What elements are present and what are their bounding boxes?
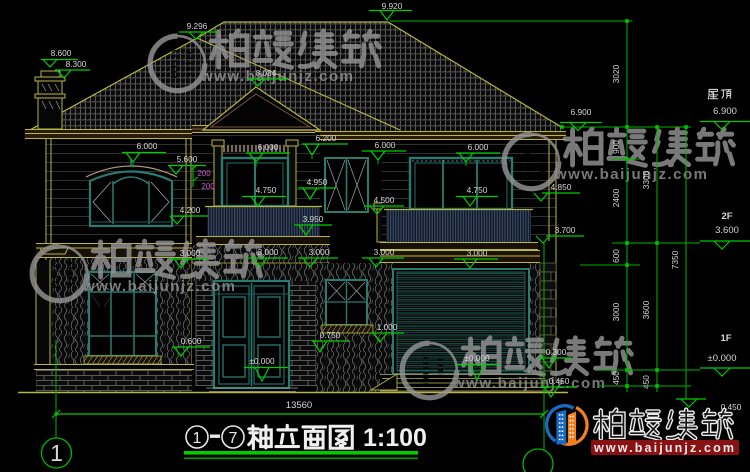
svg-text:3.950: 3.950: [303, 214, 324, 224]
svg-text:3.000: 3.000: [309, 247, 330, 257]
svg-text:2F: 2F: [721, 211, 732, 222]
svg-text:7350: 7350: [670, 250, 680, 269]
svg-text:900: 900: [611, 140, 621, 154]
svg-text:200: 200: [197, 169, 211, 178]
svg-text:450: 450: [611, 371, 621, 385]
svg-text:3.000: 3.000: [180, 248, 201, 258]
svg-text:1F: 1F: [720, 333, 731, 344]
svg-text:6.900: 6.900: [571, 107, 592, 117]
svg-text:4.750: 4.750: [256, 185, 277, 195]
svg-text:6.000: 6.000: [137, 141, 158, 151]
svg-text:4.200: 4.200: [180, 205, 201, 215]
svg-text:3.000: 3.000: [467, 248, 488, 258]
svg-text:4.500: 4.500: [374, 195, 395, 205]
svg-text:1.000: 1.000: [377, 322, 398, 332]
svg-text:0.600: 0.600: [181, 336, 202, 346]
svg-text:3.000: 3.000: [258, 247, 279, 257]
svg-text:4.950: 4.950: [307, 177, 328, 187]
svg-text:6.000: 6.000: [468, 142, 489, 152]
svg-text:0.750: 0.750: [320, 330, 341, 340]
svg-text:3600: 3600: [641, 300, 651, 319]
svg-text:3.000: 3.000: [374, 247, 395, 257]
svg-text:0.300: 0.300: [546, 347, 567, 357]
svg-text:6.900: 6.900: [713, 106, 737, 117]
svg-text:450: 450: [641, 375, 651, 389]
svg-text:1:100: 1:100: [363, 424, 427, 452]
svg-text:7: 7: [229, 430, 238, 447]
svg-text:3020: 3020: [611, 64, 621, 83]
svg-text:2400: 2400: [611, 188, 621, 207]
svg-text:3.600: 3.600: [715, 225, 739, 236]
svg-text:4.850: 4.850: [551, 182, 572, 192]
svg-text:9.920: 9.920: [382, 1, 403, 11]
svg-text:6.200: 6.200: [316, 133, 337, 143]
svg-text:8.300: 8.300: [66, 59, 87, 69]
svg-text:3000: 3000: [611, 302, 621, 321]
svg-text:1: 1: [50, 440, 63, 466]
svg-text:13560: 13560: [286, 400, 312, 411]
svg-text:6.000: 6.000: [375, 140, 396, 150]
svg-text:5.600: 5.600: [177, 154, 198, 164]
svg-text:8.084: 8.084: [256, 68, 277, 78]
svg-text:600: 600: [611, 249, 621, 263]
svg-text:±0.000: ±0.000: [708, 353, 737, 364]
svg-text:±0.000: ±0.000: [249, 356, 275, 366]
svg-text:4.750: 4.750: [467, 185, 488, 195]
svg-text:0.450: 0.450: [549, 376, 570, 386]
svg-text:±0.000: ±0.000: [464, 353, 490, 363]
svg-text:6.000: 6.000: [258, 142, 279, 152]
svg-text:3.700: 3.700: [555, 225, 576, 235]
svg-text:1: 1: [193, 430, 202, 447]
svg-text:200: 200: [201, 182, 215, 191]
svg-text:8.600: 8.600: [51, 48, 72, 58]
svg-text:9.296: 9.296: [187, 21, 208, 31]
svg-text:3300: 3300: [641, 170, 651, 189]
